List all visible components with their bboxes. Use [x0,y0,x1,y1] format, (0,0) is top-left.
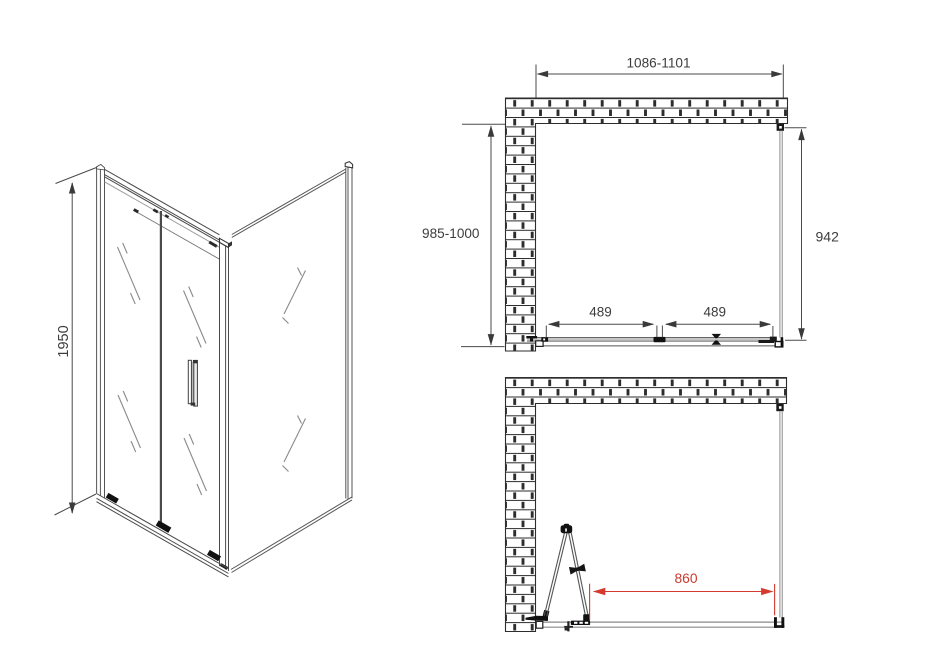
svg-text:489: 489 [589,305,612,320]
svg-text:985-1000: 985-1000 [422,226,480,241]
svg-text:1950: 1950 [56,325,72,357]
svg-text:860: 860 [674,571,697,586]
svg-text:489: 489 [704,305,727,320]
svg-text:942: 942 [816,229,840,245]
svg-text:1086-1101: 1086-1101 [627,56,691,71]
